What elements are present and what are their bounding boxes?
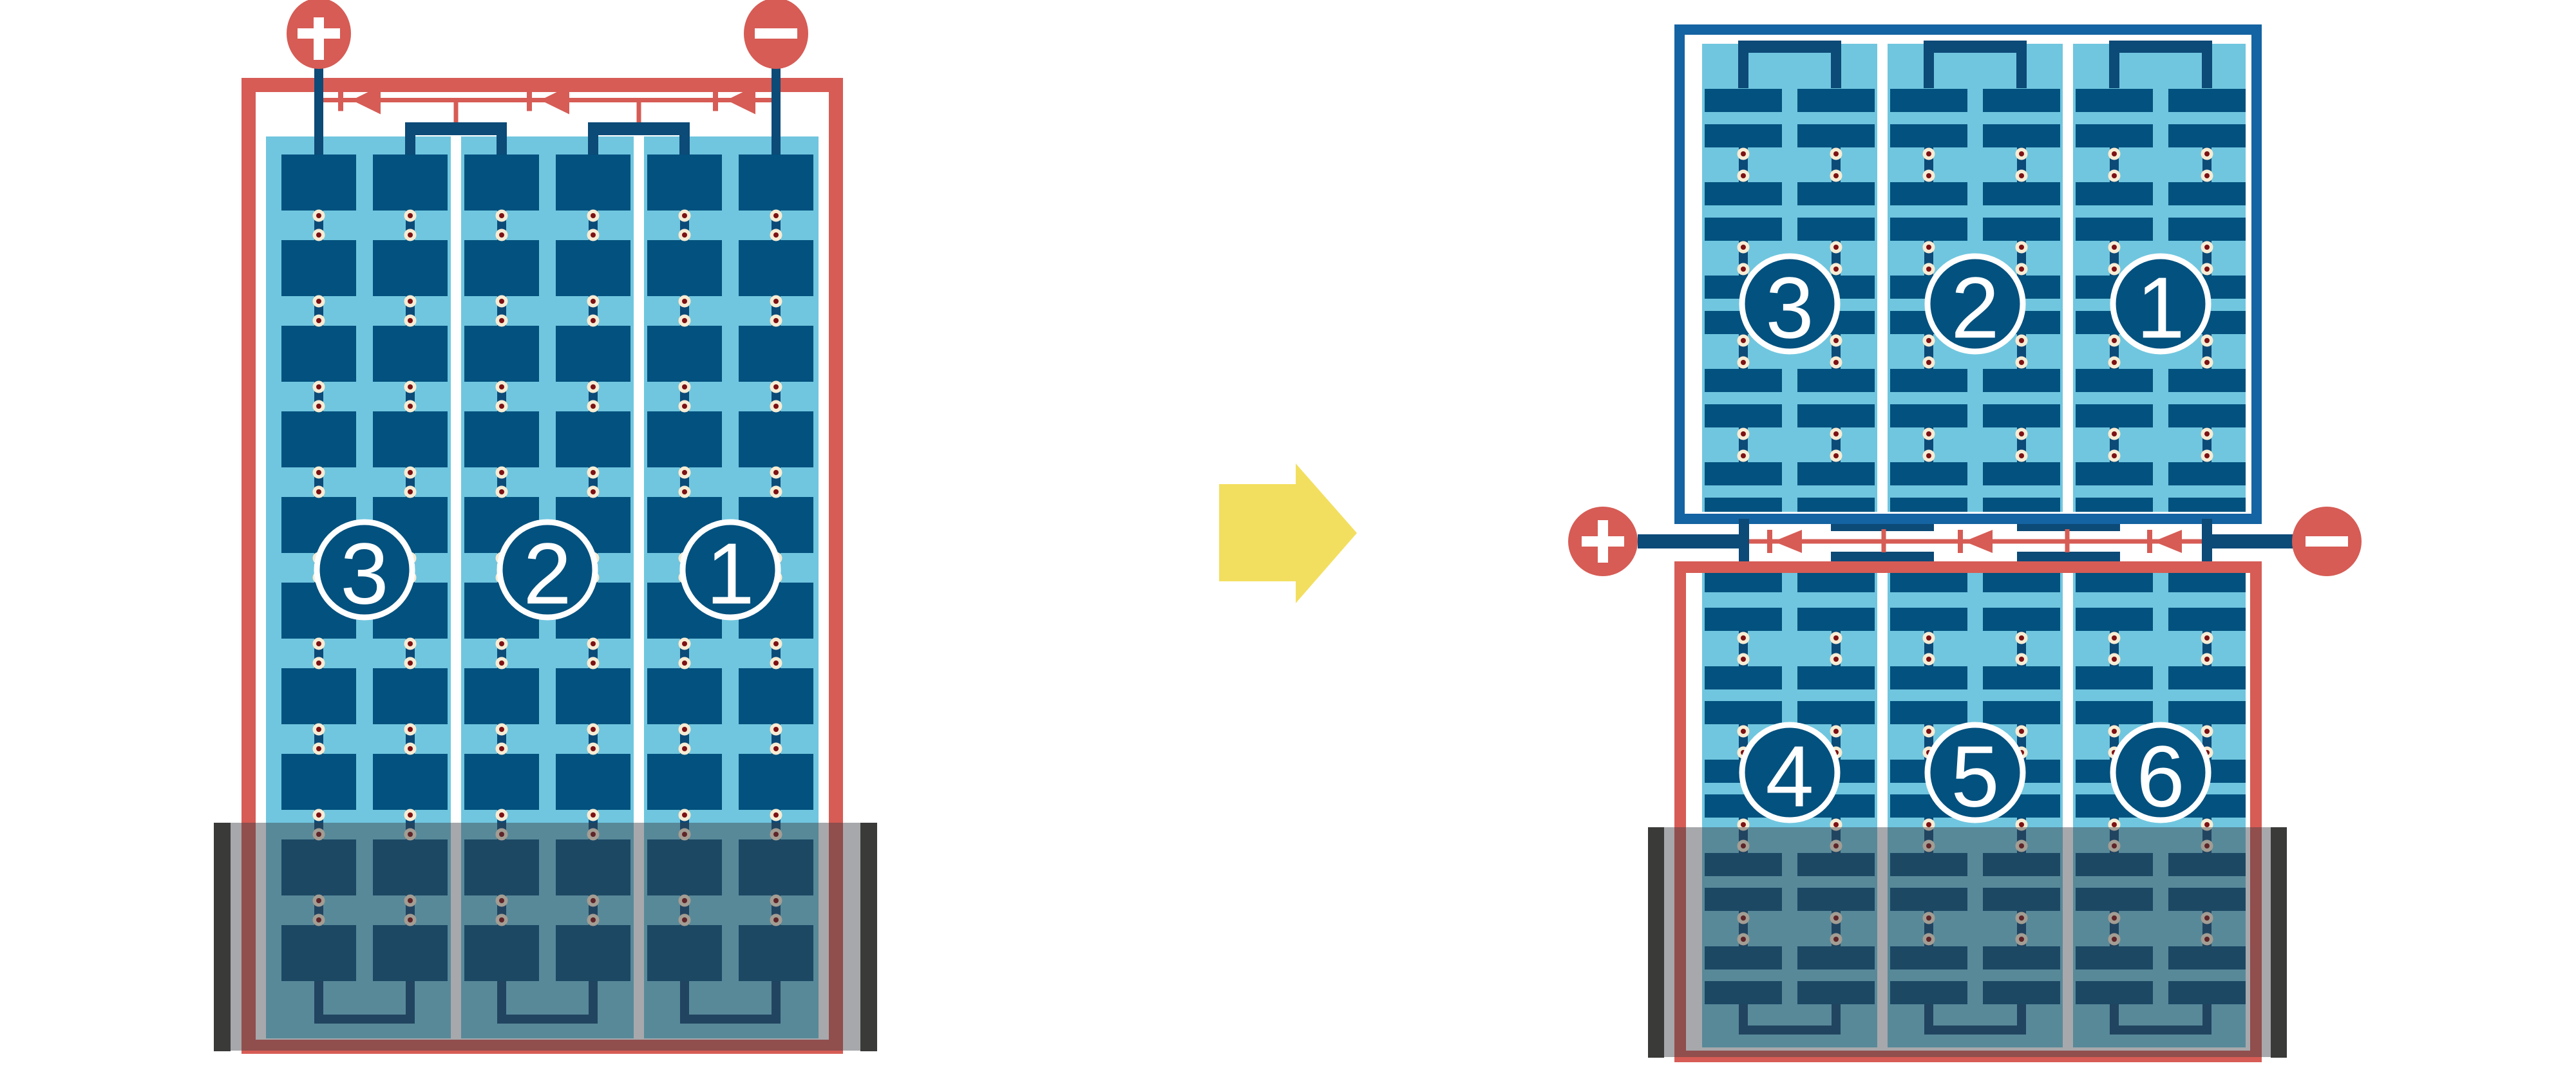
half-cell bbox=[2076, 89, 2153, 112]
solder-pad-dot bbox=[591, 318, 596, 323]
solder-pad-dot bbox=[682, 727, 687, 732]
half-cell bbox=[1705, 182, 1782, 205]
half-cell bbox=[2168, 573, 2246, 592]
solar-cell bbox=[281, 326, 356, 382]
solder-pad-dot bbox=[408, 727, 413, 732]
solar-cell bbox=[464, 754, 539, 810]
solder-pad-dot bbox=[682, 213, 687, 218]
solder-pad-dot bbox=[591, 727, 596, 732]
solder-pad-dot bbox=[591, 299, 596, 304]
solder-pad-dot bbox=[2019, 360, 2024, 365]
string-badge-number: 2 bbox=[523, 525, 571, 623]
solder-pad-dot bbox=[1741, 338, 1746, 343]
solder-pad-dot bbox=[591, 384, 596, 389]
string-jumper-bar bbox=[405, 122, 507, 135]
negative-terminal-lead bbox=[772, 64, 781, 155]
half-cell bbox=[2076, 404, 2153, 427]
solder-pad-dot bbox=[1741, 431, 1746, 436]
junction-tab-bottom bbox=[1831, 552, 1934, 561]
minus-icon bbox=[755, 28, 797, 39]
solder-pad-dot bbox=[682, 746, 687, 751]
solder-pad-dot bbox=[408, 318, 413, 323]
string-jumper-bar bbox=[588, 122, 690, 135]
string-return-leg bbox=[2109, 53, 2119, 88]
diode-tap-wire bbox=[454, 98, 459, 126]
half-cell bbox=[1705, 124, 1782, 147]
solder-pad-dot bbox=[408, 660, 413, 666]
solder-pad-dot bbox=[682, 660, 687, 666]
solar-cell bbox=[373, 668, 448, 724]
solder-pad-dot bbox=[1926, 431, 1931, 436]
half-cell bbox=[2076, 573, 2153, 592]
solder-pad-dot bbox=[316, 404, 321, 409]
diode-cathode-bar bbox=[1958, 530, 1963, 553]
solder-pad-dot bbox=[1833, 431, 1839, 436]
solder-pad-dot bbox=[1926, 822, 1931, 827]
solder-pad-dot bbox=[1741, 729, 1746, 734]
solder-pad-dot bbox=[316, 213, 321, 218]
solder-pad-dot bbox=[591, 812, 596, 818]
solder-pad-dot bbox=[773, 746, 779, 751]
solder-pad-dot bbox=[1741, 635, 1746, 641]
solder-pad-dot bbox=[1926, 151, 1931, 156]
solar-cell bbox=[464, 326, 539, 382]
half-cell bbox=[2076, 608, 2153, 631]
solder-pad-dot bbox=[1833, 173, 1839, 178]
solder-pad-dot bbox=[2019, 173, 2024, 178]
half-cell bbox=[1705, 218, 1782, 241]
junction-side-connector-left bbox=[1739, 519, 1749, 561]
solder-pad-dot bbox=[591, 213, 596, 218]
solder-pad-dot bbox=[773, 812, 779, 818]
solder-pad-dot bbox=[773, 489, 779, 494]
solar-cell bbox=[464, 155, 539, 211]
string-return-bar bbox=[2109, 41, 2212, 53]
solder-pad-dot bbox=[499, 641, 504, 646]
solder-pad-dot bbox=[2204, 729, 2210, 734]
positive-terminal-lead bbox=[314, 64, 323, 155]
solder-pad-dot bbox=[1833, 453, 1839, 458]
half-cell bbox=[2168, 404, 2246, 427]
solder-pad-dot bbox=[2112, 635, 2117, 641]
solder-pad-dot bbox=[499, 404, 504, 409]
solder-pad-dot bbox=[316, 641, 321, 646]
solar-cell bbox=[464, 411, 539, 467]
solar-cell bbox=[556, 411, 630, 467]
solder-pad-dot bbox=[591, 641, 596, 646]
solder-pad-dot bbox=[1741, 151, 1746, 156]
minus-icon bbox=[2306, 536, 2348, 547]
solder-pad-dot bbox=[316, 470, 321, 475]
solder-pad-dot bbox=[408, 470, 413, 475]
solder-pad-dot bbox=[1926, 453, 1931, 458]
half-cell bbox=[2076, 462, 2153, 485]
half-cell bbox=[1797, 218, 1875, 241]
solder-pad-dot bbox=[591, 470, 596, 475]
string-jumper-leg bbox=[497, 135, 507, 155]
solder-pad-dot bbox=[499, 384, 504, 389]
solder-pad-dot bbox=[499, 489, 504, 494]
half-cell bbox=[1890, 124, 1967, 147]
solder-pad-dot bbox=[773, 232, 779, 238]
solder-pad-dot bbox=[408, 213, 413, 218]
solder-pad-dot bbox=[408, 812, 413, 818]
solder-pad-dot bbox=[2112, 151, 2117, 156]
half-cell bbox=[1797, 404, 1875, 427]
solder-pad-dot bbox=[591, 404, 596, 409]
solder-pad-dot bbox=[1741, 822, 1746, 827]
solder-pad-dot bbox=[2112, 729, 2117, 734]
solder-pad-dot bbox=[1926, 360, 1931, 365]
solder-pad-dot bbox=[682, 404, 687, 409]
tank-wall-right bbox=[860, 823, 877, 1051]
right-module-top-half: 321 bbox=[1680, 30, 2257, 519]
solder-pad-dot bbox=[682, 641, 687, 646]
half-cell bbox=[1890, 462, 1967, 485]
solder-pad-dot bbox=[773, 470, 779, 475]
solder-pad-dot bbox=[2204, 431, 2210, 436]
solder-pad-dot bbox=[499, 470, 504, 475]
solder-pad-dot bbox=[682, 299, 687, 304]
half-cell bbox=[1797, 608, 1875, 631]
diode-cathode-bar bbox=[338, 89, 343, 111]
string-badge-number: 2 bbox=[1951, 259, 1999, 357]
solar-cell bbox=[556, 155, 630, 211]
diode-cathode-bar bbox=[713, 89, 718, 111]
diode-arrow bbox=[1774, 530, 1802, 553]
solder-pad-dot bbox=[408, 489, 413, 494]
half-cell bbox=[1983, 89, 2060, 112]
diode-arrow bbox=[2154, 530, 2182, 553]
solder-pad-dot bbox=[2204, 360, 2210, 365]
solder-pad-dot bbox=[316, 660, 321, 666]
junction-side-connector-right bbox=[2202, 519, 2212, 561]
solder-pad-dot bbox=[1741, 360, 1746, 365]
solder-pad-dot bbox=[499, 232, 504, 238]
solder-pad-dot bbox=[1926, 635, 1931, 641]
half-cell bbox=[1983, 404, 2060, 427]
solder-pad-dot bbox=[1741, 657, 1746, 662]
string-badge-number: 3 bbox=[340, 525, 388, 623]
solar-cell bbox=[281, 754, 356, 810]
solder-pad-dot bbox=[1741, 267, 1746, 272]
solder-pad-dot bbox=[1926, 173, 1931, 178]
half-cell bbox=[1890, 573, 1967, 592]
solder-pad-dot bbox=[773, 384, 779, 389]
half-cell bbox=[2168, 369, 2246, 392]
solder-pad-dot bbox=[773, 641, 779, 646]
diode-arrow bbox=[1964, 530, 1993, 553]
solder-pad-dot bbox=[408, 641, 413, 646]
solder-pad-dot bbox=[2019, 151, 2024, 156]
string-badge-number: 5 bbox=[1951, 728, 1999, 825]
half-cell bbox=[2168, 124, 2246, 147]
solder-pad-dot bbox=[2112, 173, 2117, 178]
half-cell bbox=[1983, 218, 2060, 241]
solder-pad-dot bbox=[316, 232, 321, 238]
junction-tab-bottom bbox=[2017, 552, 2120, 561]
solder-pad-dot bbox=[682, 470, 687, 475]
half-cell bbox=[1983, 608, 2060, 631]
solder-pad-dot bbox=[682, 489, 687, 494]
solar-cell bbox=[556, 326, 630, 382]
solder-pad-dot bbox=[2204, 173, 2210, 178]
solder-pad-dot bbox=[2019, 729, 2024, 734]
string-jumper-leg bbox=[405, 135, 415, 155]
half-cell bbox=[1983, 573, 2060, 592]
half-cell bbox=[2168, 218, 2246, 241]
half-cell bbox=[1797, 369, 1875, 392]
solder-pad-dot bbox=[1833, 635, 1839, 641]
string-return-bar bbox=[1924, 41, 2027, 53]
diode-section-tick bbox=[2065, 529, 2070, 552]
solar-cell bbox=[373, 411, 448, 467]
solder-pad-dot bbox=[2204, 151, 2210, 156]
half-cell bbox=[2168, 666, 2246, 689]
half-cell bbox=[2076, 218, 2153, 241]
solder-pad-dot bbox=[2112, 267, 2117, 272]
solar-cell bbox=[281, 155, 356, 211]
solder-pad-dot bbox=[1833, 245, 1839, 250]
solar-cell bbox=[739, 754, 813, 810]
plus-icon bbox=[314, 17, 324, 60]
right-module-bottom-half: 456 bbox=[1648, 567, 2287, 1058]
solar-cell bbox=[556, 668, 630, 724]
solder-pad-dot bbox=[1833, 360, 1839, 365]
half-cell bbox=[1705, 573, 1782, 592]
half-cell bbox=[1797, 573, 1875, 592]
half-cell bbox=[1797, 701, 1875, 724]
solder-pad-dot bbox=[316, 727, 321, 732]
half-cell bbox=[1890, 218, 1967, 241]
solder-pad-dot bbox=[316, 299, 321, 304]
solar-cell bbox=[739, 411, 813, 467]
half-cell bbox=[1983, 124, 2060, 147]
solder-pad-dot bbox=[1926, 338, 1931, 343]
solder-pad-dot bbox=[773, 727, 779, 732]
solar-cell bbox=[556, 240, 630, 296]
solder-pad-dot bbox=[2112, 657, 2117, 662]
half-cell bbox=[1797, 124, 1875, 147]
solder-pad-dot bbox=[2019, 453, 2024, 458]
solar-cell bbox=[647, 155, 722, 211]
half-cell bbox=[2168, 701, 2246, 724]
tank-wall-left bbox=[214, 823, 231, 1051]
solder-pad-dot bbox=[408, 384, 413, 389]
half-cell bbox=[2168, 462, 2246, 485]
half-cell bbox=[1797, 498, 1875, 512]
solder-pad-dot bbox=[2019, 267, 2024, 272]
solder-pad-dot bbox=[591, 660, 596, 666]
solder-pad-dot bbox=[2204, 338, 2210, 343]
half-cell bbox=[1705, 666, 1782, 689]
solder-pad-dot bbox=[2112, 338, 2117, 343]
diode-tap-wire bbox=[637, 98, 641, 126]
transform-arrow-icon bbox=[1219, 464, 1357, 603]
string-badge-number: 4 bbox=[1765, 728, 1814, 825]
string-return-leg bbox=[1738, 53, 1748, 88]
solar-cell bbox=[647, 240, 722, 296]
half-cell bbox=[1705, 89, 1782, 112]
solder-pad-dot bbox=[2204, 453, 2210, 458]
solder-pad-dot bbox=[2019, 338, 2024, 343]
half-cell bbox=[1705, 701, 1782, 724]
string-jumper-leg bbox=[679, 135, 690, 155]
half-cell bbox=[1890, 404, 1967, 427]
string-badge-number: 3 bbox=[1765, 259, 1814, 357]
solar-cell bbox=[739, 668, 813, 724]
solder-pad-dot bbox=[1833, 822, 1839, 827]
half-cell bbox=[1890, 608, 1967, 631]
string-return-leg bbox=[1831, 53, 1841, 88]
solder-pad-dot bbox=[2019, 245, 2024, 250]
solder-pad-dot bbox=[316, 489, 321, 494]
solder-pad-dot bbox=[591, 489, 596, 494]
solar-cell bbox=[281, 411, 356, 467]
solder-pad-dot bbox=[1926, 657, 1931, 662]
solder-pad-dot bbox=[773, 318, 779, 323]
solder-pad-dot bbox=[2204, 635, 2210, 641]
solder-pad-dot bbox=[2019, 635, 2024, 641]
solder-pad-dot bbox=[408, 404, 413, 409]
solder-pad-dot bbox=[499, 660, 504, 666]
solder-pad-dot bbox=[499, 299, 504, 304]
solder-pad-dot bbox=[773, 299, 779, 304]
solder-pad-dot bbox=[499, 812, 504, 818]
solder-pad-dot bbox=[2112, 245, 2117, 250]
solder-pad-dot bbox=[591, 232, 596, 238]
solar-cell bbox=[373, 754, 448, 810]
solar-cell bbox=[647, 411, 722, 467]
string-return-leg bbox=[2016, 53, 2027, 88]
solder-pad-dot bbox=[408, 746, 413, 751]
solar-cell bbox=[281, 240, 356, 296]
half-cell bbox=[1890, 89, 1967, 112]
half-cell bbox=[1705, 462, 1782, 485]
solder-pad-dot bbox=[2204, 822, 2210, 827]
solder-pad-dot bbox=[2112, 360, 2117, 365]
half-cell bbox=[1890, 182, 1967, 205]
half-cell bbox=[1797, 666, 1875, 689]
solar-cell bbox=[556, 754, 630, 810]
solder-pad-dot bbox=[1833, 267, 1839, 272]
solar-cell bbox=[739, 326, 813, 382]
string-gap bbox=[1877, 44, 1888, 512]
solder-pad-dot bbox=[316, 746, 321, 751]
solar-cell bbox=[464, 240, 539, 296]
solder-pad-dot bbox=[682, 232, 687, 238]
half-cell bbox=[1983, 369, 2060, 392]
solder-pad-dot bbox=[316, 384, 321, 389]
left-module: 321 bbox=[214, 0, 877, 1051]
diagram-stage: 321321456 bbox=[0, 0, 2576, 1068]
half-cell bbox=[2076, 182, 2153, 205]
solar-cell bbox=[647, 668, 722, 724]
half-cell bbox=[1890, 498, 1967, 512]
solder-pad-dot bbox=[499, 727, 504, 732]
solder-pad-dot bbox=[1741, 245, 1746, 250]
solder-pad-dot bbox=[682, 812, 687, 818]
solder-pad-dot bbox=[682, 384, 687, 389]
solar-cell bbox=[739, 155, 813, 211]
solar-cell bbox=[464, 668, 539, 724]
half-cell bbox=[1705, 608, 1782, 631]
solder-pad-dot bbox=[773, 404, 779, 409]
junction-box-area bbox=[1638, 519, 2309, 561]
solder-pad-dot bbox=[2204, 657, 2210, 662]
half-cell bbox=[1890, 701, 1967, 724]
solar-cell bbox=[373, 155, 448, 211]
half-cell bbox=[1705, 404, 1782, 427]
half-cell bbox=[2168, 89, 2246, 112]
solder-pad-dot bbox=[1926, 729, 1931, 734]
solder-pad-dot bbox=[316, 318, 321, 323]
string-return-bar bbox=[1738, 41, 1841, 53]
solder-pad-dot bbox=[591, 746, 596, 751]
solder-pad-dot bbox=[1926, 245, 1931, 250]
diode-section-tick bbox=[1882, 529, 1886, 552]
water-overlay bbox=[231, 823, 860, 1051]
solar-cell bbox=[373, 240, 448, 296]
solar-module-flooding-diagram: 321321456 bbox=[0, 0, 2576, 1068]
half-cell bbox=[1705, 369, 1782, 392]
solder-pad-dot bbox=[682, 318, 687, 323]
string-gap bbox=[2063, 44, 2073, 512]
solar-cell bbox=[281, 668, 356, 724]
water-overlay bbox=[1664, 827, 2271, 1057]
diode-cathode-bar bbox=[2147, 530, 2152, 553]
half-cell bbox=[1983, 462, 2060, 485]
solder-pad-dot bbox=[1741, 173, 1746, 178]
solder-pad-dot bbox=[499, 318, 504, 323]
solar-cell bbox=[739, 240, 813, 296]
half-cell bbox=[2076, 701, 2153, 724]
half-cell bbox=[1705, 498, 1782, 512]
half-cell bbox=[1797, 462, 1875, 485]
solar-cell bbox=[647, 326, 722, 382]
solder-pad-dot bbox=[2112, 431, 2117, 436]
solder-pad-dot bbox=[773, 660, 779, 666]
half-cell bbox=[1797, 89, 1875, 112]
half-cell bbox=[2076, 666, 2153, 689]
half-cell bbox=[1983, 498, 2060, 512]
solder-pad-dot bbox=[1741, 453, 1746, 458]
solder-pad-dot bbox=[499, 746, 504, 751]
half-cell bbox=[2168, 182, 2246, 205]
solder-pad-dot bbox=[2019, 657, 2024, 662]
solder-pad-dot bbox=[2019, 822, 2024, 827]
half-cell bbox=[1983, 666, 2060, 689]
diode-cathode-bar bbox=[1767, 530, 1772, 553]
string-return-leg bbox=[2202, 53, 2212, 88]
half-cell bbox=[2168, 498, 2246, 512]
solder-pad-dot bbox=[2112, 822, 2117, 827]
solder-pad-dot bbox=[1833, 729, 1839, 734]
half-cell bbox=[1890, 369, 1967, 392]
half-cell bbox=[2076, 498, 2153, 512]
half-cell bbox=[1983, 701, 2060, 724]
solar-cell bbox=[647, 754, 722, 810]
solder-pad-dot bbox=[499, 213, 504, 218]
string-return-leg bbox=[1924, 53, 1934, 88]
string-badge-number: 1 bbox=[706, 525, 754, 623]
solder-pad-dot bbox=[2112, 453, 2117, 458]
half-cell bbox=[1983, 182, 2060, 205]
half-cell bbox=[2168, 608, 2246, 631]
solder-pad-dot bbox=[773, 213, 779, 218]
right-module: 321456 bbox=[1568, 30, 2362, 1058]
solder-pad-dot bbox=[408, 232, 413, 238]
